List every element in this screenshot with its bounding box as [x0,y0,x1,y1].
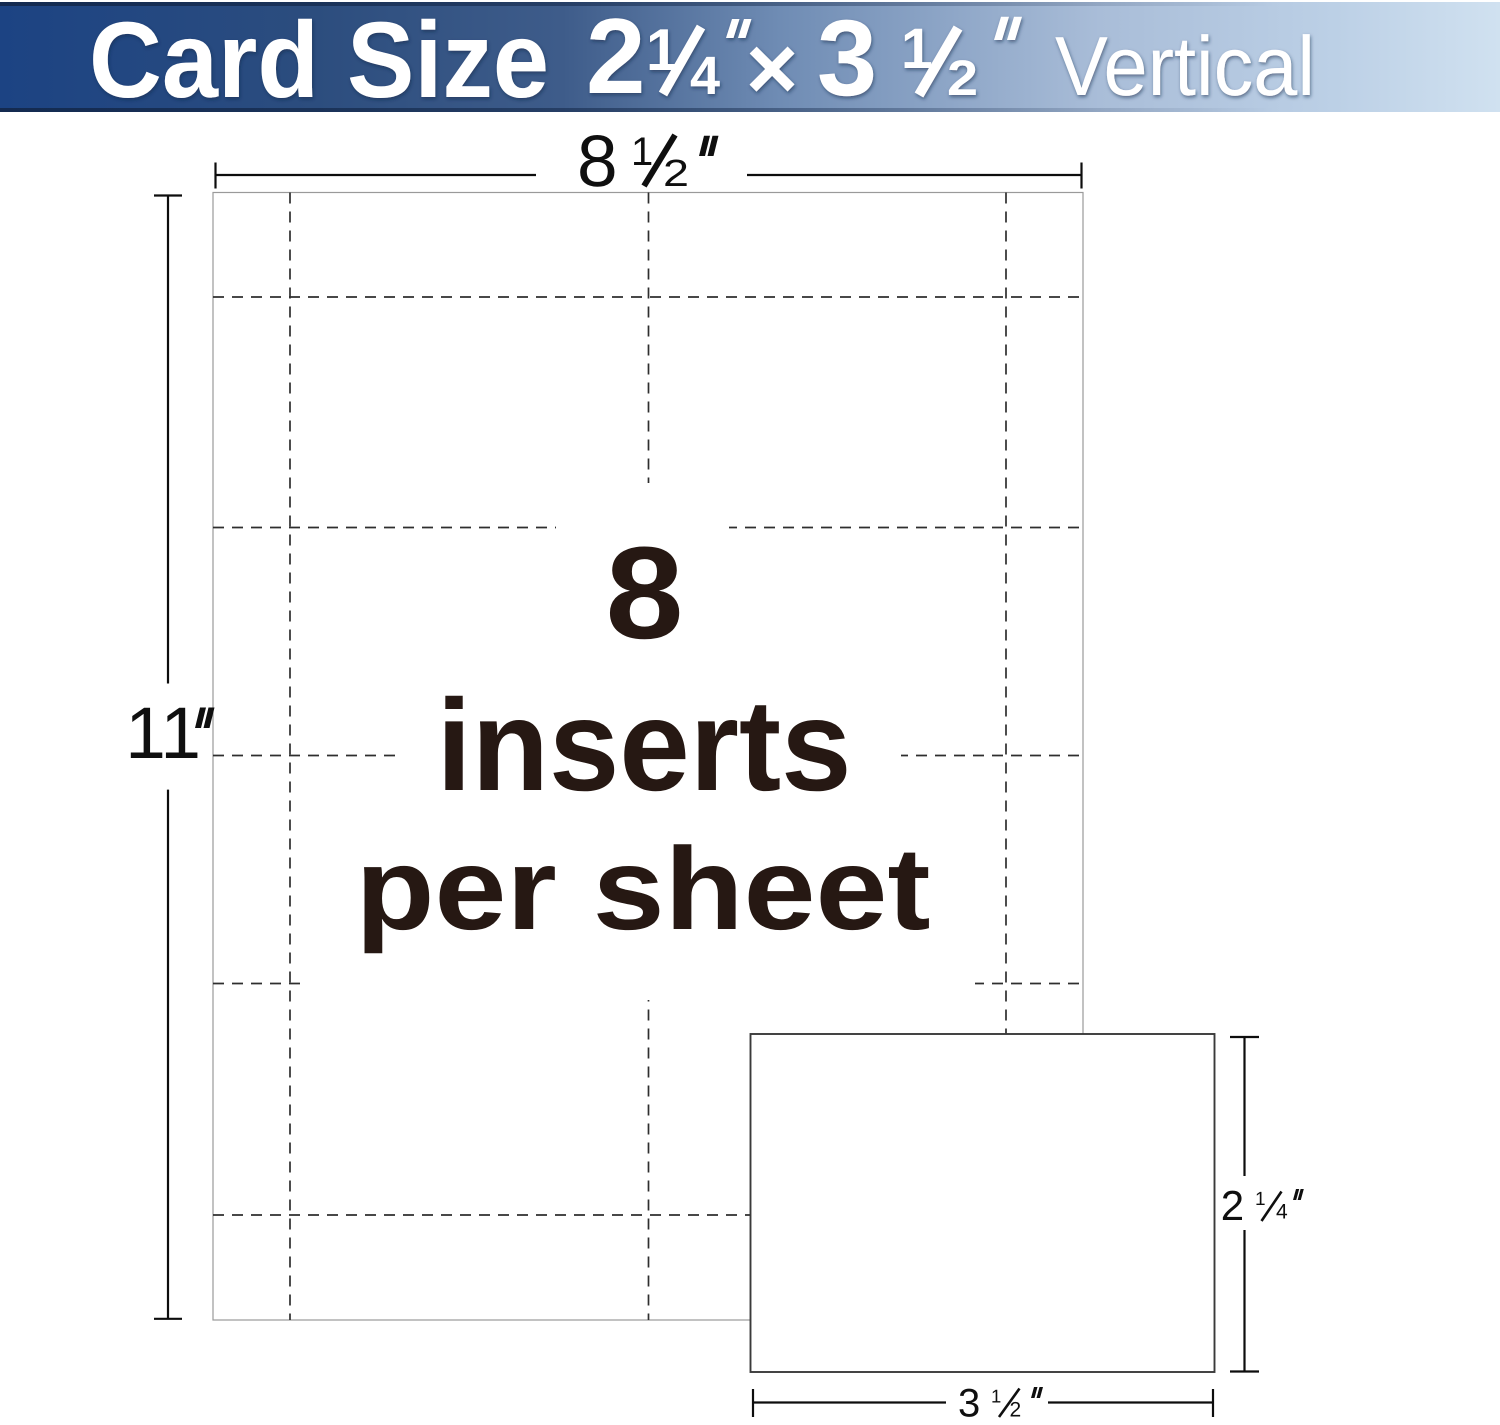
svg-text:3: 3 [958,1382,980,1421]
svg-text:8: 8 [606,519,684,666]
svg-text:per sheet: per sheet [356,823,931,954]
svg-text:inserts: inserts [437,672,852,818]
svg-text:8: 8 [577,121,618,202]
svg-text:Card Size: Card Size [89,0,549,120]
svg-text:2: 2 [1010,1399,1022,1421]
svg-text:1: 1 [631,130,653,174]
svg-text:1: 1 [1255,1189,1266,1210]
svg-text:3: 3 [817,0,877,118]
svg-text:11: 11 [125,693,201,774]
svg-text:2: 2 [947,50,978,106]
svg-text:2: 2 [1221,1182,1244,1229]
svg-text:4: 4 [690,46,720,106]
svg-text:4: 4 [1276,1201,1288,1224]
svg-text:2: 2 [663,153,689,195]
svg-text:×: × [746,19,799,119]
svg-text:Vertical: Vertical [1055,19,1315,113]
svg-text:2: 2 [586,0,646,116]
svg-text:1: 1 [991,1386,1001,1407]
